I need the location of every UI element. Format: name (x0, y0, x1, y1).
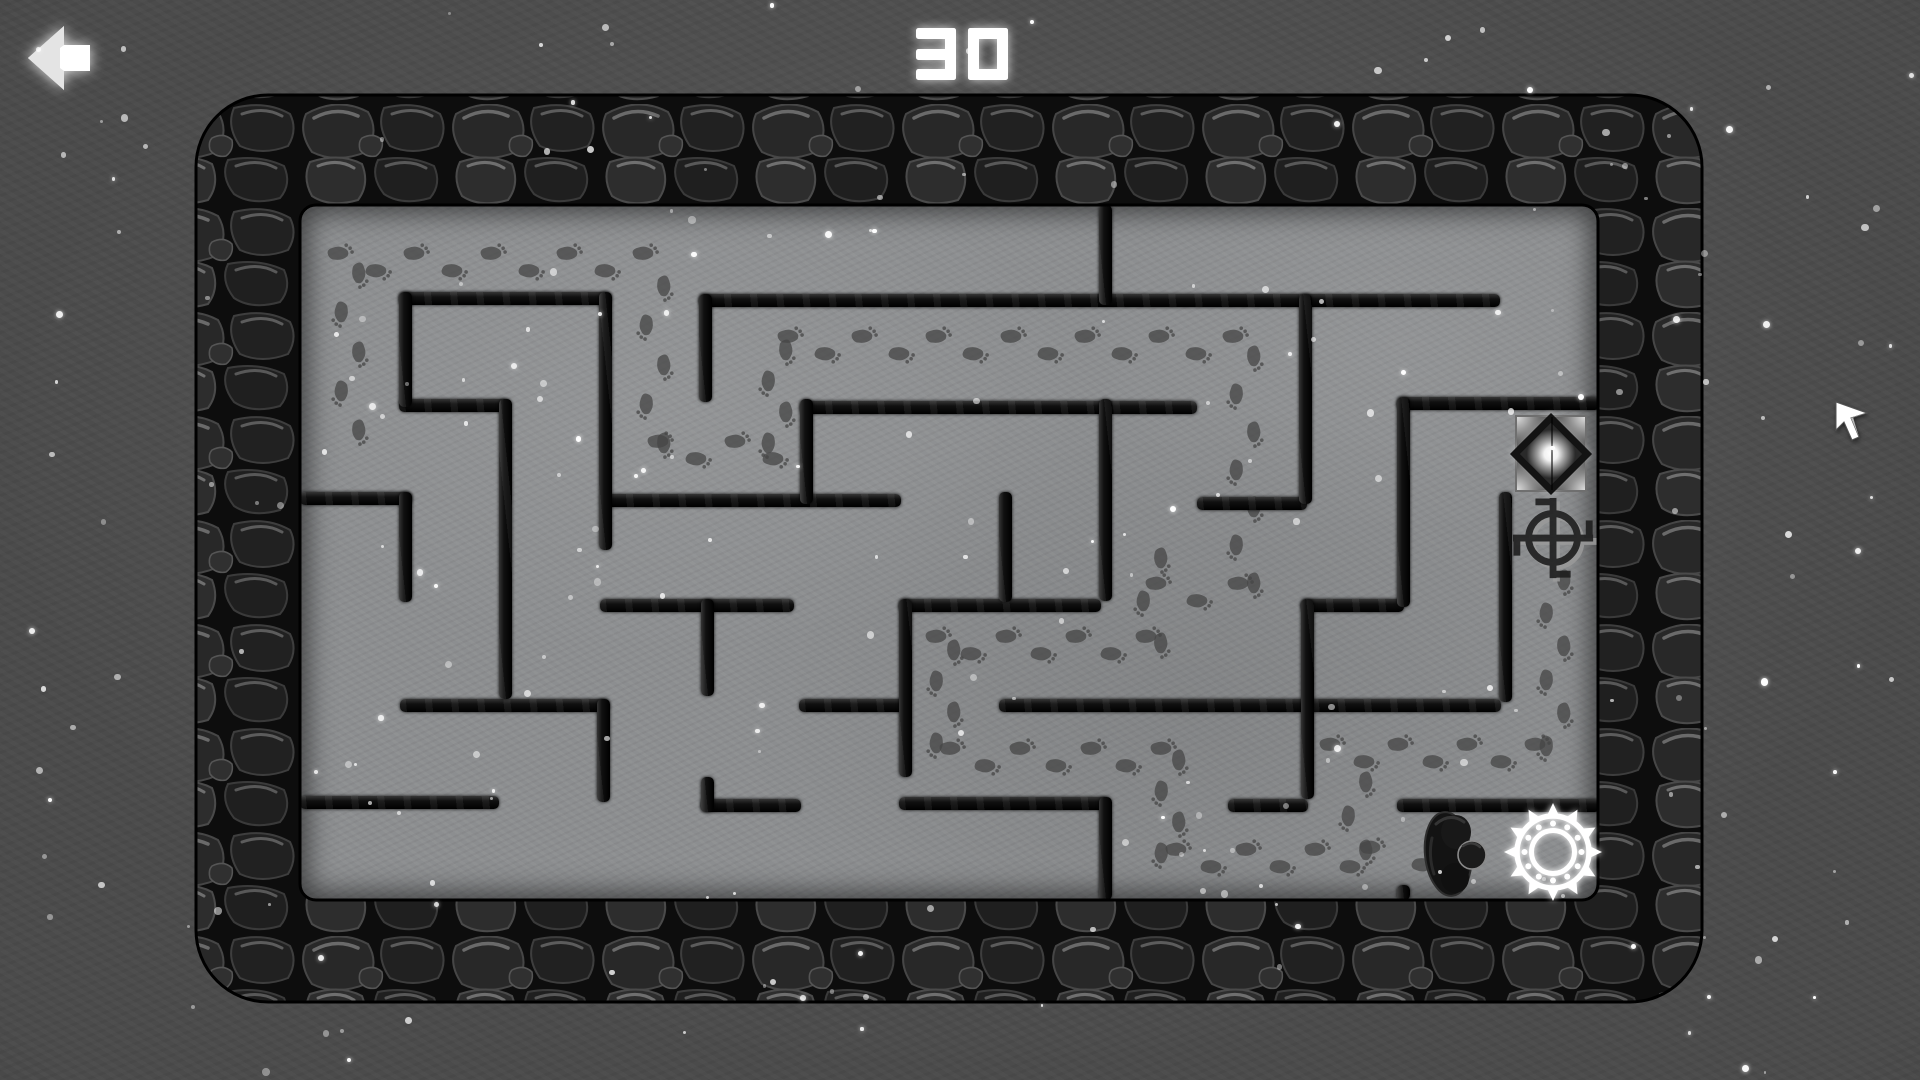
footprint (1076, 734, 1108, 759)
footprint (922, 322, 954, 347)
goal-diamond-tile (1515, 415, 1587, 492)
maze-wall-segment (399, 492, 412, 602)
footprint (1532, 599, 1557, 631)
footprint (942, 636, 967, 668)
maze-wall-segment (799, 699, 906, 712)
footprint (971, 754, 1003, 779)
footprint (720, 427, 752, 452)
level-digit (916, 28, 956, 80)
maze-wall-segment (1099, 205, 1112, 305)
cursor-icon (1833, 400, 1873, 448)
footprint (1532, 665, 1557, 697)
footprint (848, 322, 880, 347)
compass-crosshair-icon (1511, 496, 1599, 584)
maze-wall-segment (701, 777, 714, 812)
maze-wall-segment (800, 399, 813, 504)
footprint (942, 698, 967, 730)
footprint (922, 667, 947, 699)
footprint (1222, 531, 1247, 563)
footprint (347, 259, 372, 291)
footprint (754, 429, 779, 461)
maze-wall-segment (1228, 799, 1308, 812)
maze-wall-segment (399, 292, 611, 305)
maze-wall-segment (1301, 599, 1404, 612)
maze-wall-segment (399, 399, 509, 412)
footprint (1062, 622, 1094, 647)
footprint (774, 398, 799, 430)
game-scene: 30 (0, 0, 1920, 1080)
footprint (1147, 777, 1172, 809)
footprint (1149, 544, 1174, 576)
footprint (1132, 622, 1164, 647)
footprint (1384, 730, 1416, 755)
maze-wall-segment (1299, 294, 1312, 504)
footprint (682, 447, 714, 472)
footprint (400, 239, 432, 264)
footprint (632, 311, 657, 343)
footprint (1145, 322, 1177, 347)
footprint (652, 350, 677, 382)
gear-sun-icon (1498, 797, 1608, 907)
footprint (959, 342, 991, 367)
footprint (347, 337, 372, 369)
footprint (1334, 802, 1359, 834)
maze-wall-segment (499, 399, 512, 699)
footprint (992, 622, 1024, 647)
maze-wall-segment (400, 699, 609, 712)
footprint (514, 259, 546, 284)
footprint (652, 272, 677, 304)
footprint (591, 259, 623, 284)
maze-wall-segment (300, 796, 499, 809)
footprint (644, 427, 676, 452)
footprint (1108, 342, 1140, 367)
footprint (629, 239, 661, 264)
footprint (1033, 342, 1065, 367)
footprint (1418, 750, 1450, 775)
footprint (553, 239, 585, 264)
footprint (327, 377, 352, 409)
level-digit (968, 28, 1008, 80)
footprint (885, 342, 917, 367)
footprint (1452, 730, 1484, 755)
footprint (1222, 455, 1247, 487)
footprint (1222, 380, 1247, 412)
tile-seam (1551, 417, 1553, 490)
footprint (1183, 589, 1215, 614)
maze-wall-segment (899, 797, 1109, 810)
footprint (1027, 642, 1059, 667)
footprint (1242, 417, 1267, 449)
maze-wall-segment (600, 599, 794, 612)
maze-wall-segment (1099, 797, 1112, 900)
footprint (1224, 569, 1256, 594)
footprint (1552, 632, 1577, 664)
footprint (1532, 732, 1557, 764)
maze-wall-segment (1197, 497, 1307, 510)
footprint (936, 734, 968, 759)
maze-wall-segment (800, 401, 1197, 414)
maze-wall-segment (701, 599, 714, 696)
footprint (1316, 730, 1348, 755)
footprint (811, 342, 843, 367)
maze-wall-segment (1397, 885, 1410, 900)
footprint (1112, 754, 1144, 779)
level-indicator: 30 (916, 28, 1008, 80)
maze-wall-segment (599, 292, 612, 550)
back-button[interactable] (20, 18, 100, 98)
footprint (1006, 734, 1038, 759)
maze-wall-segment (699, 294, 712, 402)
footprint (996, 322, 1028, 347)
footprint (1097, 642, 1129, 667)
maze-wall-segment (999, 699, 1501, 712)
footprint (438, 259, 470, 284)
maze-wall-segment (399, 292, 412, 407)
maze-wall-segment (597, 699, 610, 802)
footprint (1552, 699, 1577, 731)
footprint (1350, 750, 1382, 775)
maze-wall-segment (899, 599, 912, 777)
footprint (632, 390, 657, 422)
footprint (476, 239, 508, 264)
footprint (1162, 835, 1194, 860)
maze-wall-segment (601, 494, 901, 507)
footprint (1301, 835, 1333, 860)
footprint (1231, 835, 1263, 860)
maze-wall-segment (300, 492, 412, 505)
maze-wall-segment (1301, 599, 1314, 799)
footprint (1129, 586, 1154, 618)
footprint (1167, 746, 1192, 778)
player-creature (1422, 808, 1492, 900)
back-arrow-icon (20, 18, 100, 98)
footprint (1242, 342, 1267, 374)
footprint (347, 416, 372, 448)
footprint (1487, 750, 1519, 775)
maze-wall-segment (1397, 397, 1600, 410)
footprint (327, 298, 352, 330)
footprint (1266, 855, 1298, 880)
footprint (774, 322, 806, 347)
maze-wall-segment (701, 799, 801, 812)
footprint (1070, 322, 1102, 347)
footprint (1182, 342, 1214, 367)
maze-wall-segment (999, 492, 1012, 602)
maze-wall-segment (1099, 399, 1112, 601)
footprint (1356, 833, 1388, 858)
footprint (1197, 855, 1229, 880)
footprint (754, 367, 779, 399)
footprint (1041, 754, 1073, 779)
maze-wall-segment (1397, 397, 1410, 607)
